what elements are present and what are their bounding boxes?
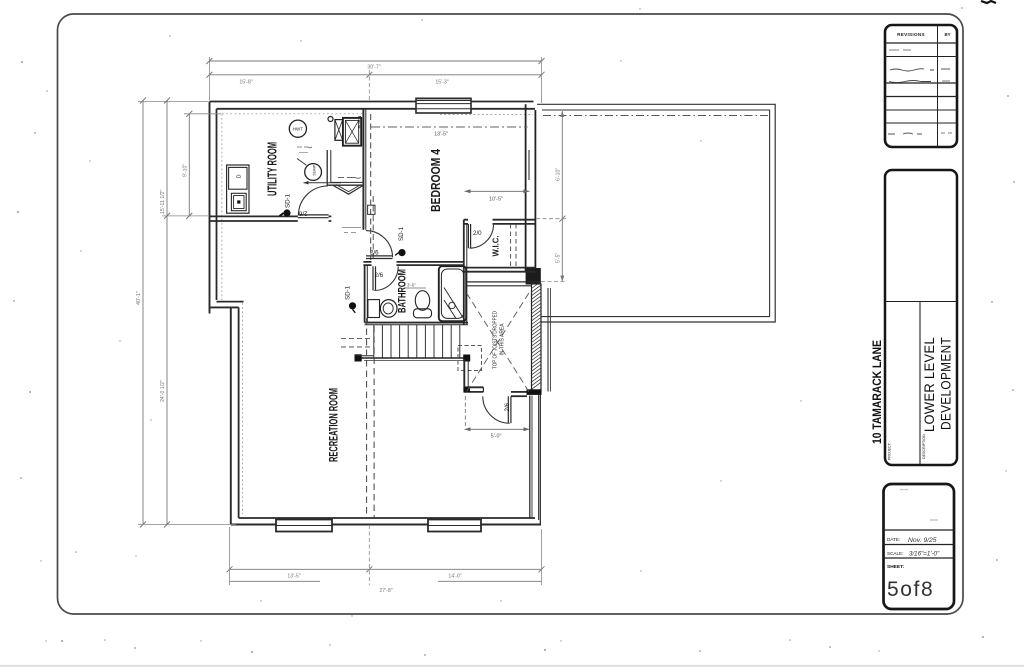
svg-text:SHEET:: SHEET: xyxy=(887,564,904,570)
svg-text:DESCRIPTION:: DESCRIPTION: xyxy=(922,433,926,459)
svg-text:30'-7": 30'-7" xyxy=(367,65,380,71)
svg-text:5of8: 5of8 xyxy=(887,578,934,601)
svg-text:HWT: HWT xyxy=(293,127,303,132)
svg-text:2/0: 2/0 xyxy=(473,230,482,237)
svg-text:SD-1: SD-1 xyxy=(399,226,405,241)
svg-text:BEDROOM 4: BEDROOM 4 xyxy=(429,149,443,212)
svg-text:9'-10": 9'-10" xyxy=(183,164,189,177)
svg-text:LOWER LEVEL: LOWER LEVEL xyxy=(922,337,937,432)
svg-text:W.I.C.: W.I.C. xyxy=(491,236,501,257)
svg-text:REVISIONS: REVISIONS xyxy=(897,32,925,37)
svg-text:2/6: 2/6 xyxy=(375,272,384,279)
svg-text:SD-1: SD-1 xyxy=(346,285,352,300)
svg-text:3'-6": 3'-6" xyxy=(407,283,416,288)
svg-text:24'-0 1/2": 24'-0 1/2" xyxy=(160,380,166,402)
svg-text:RECREATION ROOM: RECREATION ROOM xyxy=(329,388,341,462)
svg-text:10 TAMARACK LANE: 10 TAMARACK LANE xyxy=(872,340,884,444)
svg-text:SCALE:: SCALE: xyxy=(887,551,903,556)
svg-text:BATHROOM: BATHROOM xyxy=(397,269,409,313)
svg-text:13'-5": 13'-5" xyxy=(287,574,300,580)
svg-text:40'-1": 40'-1" xyxy=(136,291,142,305)
svg-text:2/6: 2/6 xyxy=(298,210,307,217)
svg-text:SUMP: SUMP xyxy=(312,164,316,175)
svg-text:TOP OF JOISTS DROPPED: TOP OF JOISTS DROPPED xyxy=(493,311,499,369)
svg-text:BY: BY xyxy=(944,32,950,37)
svg-text:UTILITY ROOM: UTILITY ROOM xyxy=(266,142,280,196)
svg-text:14'-0": 14'-0" xyxy=(448,574,461,580)
svg-text:5'-5": 5'-5" xyxy=(556,253,562,263)
svg-text:3/16"=1'-0": 3/16"=1'-0" xyxy=(909,551,940,558)
svg-text:27'-8": 27'-8" xyxy=(379,588,392,594)
svg-text:15'-3": 15'-3" xyxy=(435,80,448,86)
svg-text:D: D xyxy=(237,174,243,178)
svg-text:6'-10": 6'-10" xyxy=(556,168,562,181)
svg-text:10'-5": 10'-5" xyxy=(489,197,503,203)
svg-text:FURN: FURN xyxy=(357,116,362,129)
svg-text:DATE:: DATE: xyxy=(887,537,900,542)
svg-text:13'-5": 13'-5" xyxy=(434,132,448,138)
svg-text:DEVELOPMENT: DEVELOPMENT xyxy=(939,337,954,430)
svg-text:SD-1: SD-1 xyxy=(286,193,292,208)
svg-text:15'-8": 15'-8" xyxy=(239,80,252,86)
svg-text:15'-11 1/2": 15'-11 1/2" xyxy=(160,189,166,214)
svg-text:2/6: 2/6 xyxy=(370,250,379,257)
svg-text:PROJECT:: PROJECT: xyxy=(888,442,892,460)
svg-text:5'-0": 5'-0" xyxy=(491,434,502,440)
svg-text:Nov. 9/25: Nov. 9/25 xyxy=(908,537,937,544)
svg-text:2/6: 2/6 xyxy=(504,402,511,411)
